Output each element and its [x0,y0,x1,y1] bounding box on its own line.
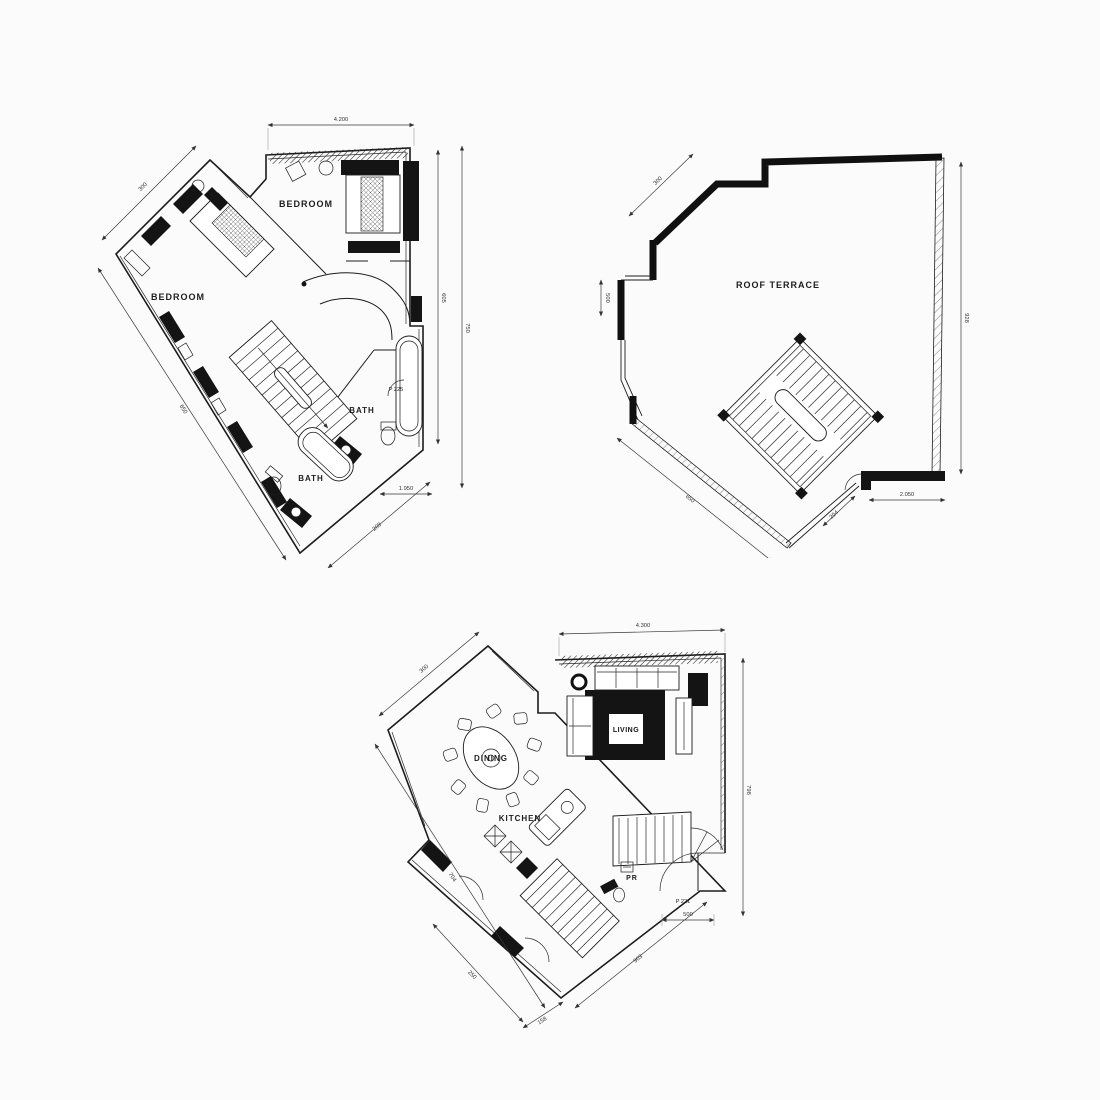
room-label-pr: PR [626,875,638,882]
dim-bottom-right-h: 2.050 [900,492,915,498]
cistern [600,879,618,894]
room-label-bath-lower: BATH [298,474,324,483]
chair [523,769,540,786]
dim-bottom-right: 903 [633,954,644,965]
side-table [319,161,333,175]
door-tag: P 221 [676,899,691,905]
room-label-bath-upper: BATH [349,406,375,415]
dim-left-upper: 300 [653,176,664,187]
wardrobe-block [141,216,171,246]
counter-tile [516,857,538,879]
living-furniture [567,666,708,760]
upper-floor-plan: BEDROOM BEDROOM BATH BATH P 225 4.200 60… [78,98,478,568]
main-floor-plan: LIVING DINING [373,610,773,1030]
wardrobe-block [341,160,399,175]
right-wall [932,158,944,476]
chair [476,798,489,813]
dim-right: 798 [745,785,751,795]
chair [286,161,306,181]
dim-right-outer: 750 [464,323,470,333]
room-label-roof-terrace: ROOF TERRACE [736,280,820,290]
room-label-dining: DINING [474,754,508,763]
door-tag: P 225 [389,387,404,393]
toilet [614,888,625,902]
dim-bottom-inner: 250 [466,970,477,981]
dim-left-upper: 300 [419,664,430,675]
staircase [229,321,357,456]
side-table [572,675,586,689]
dim-left-lower: 704 [447,872,458,884]
room-label-bedroom-right: BEDROOM [279,199,333,209]
chair [442,747,458,762]
top-wall-hatch [561,651,718,668]
room-label-bedroom-left: BEDROOM [151,292,205,302]
door-hinge-dot [302,282,307,287]
room-label-living: LIVING [613,727,639,734]
dim-top: 4.200 [334,117,349,123]
chair [514,712,528,724]
wardrobe-block [491,926,524,957]
chair [457,718,472,731]
dim-bottom-left: 650 [684,494,695,505]
wardrobe-block [173,184,203,214]
dim-right-inner: 605 [440,293,446,303]
bottom-wall-bar [861,471,945,481]
roof-terrace-plan: ROOF TERRACE 928 300 500 650 2.050 204 [593,128,983,558]
chair [526,737,542,752]
powder-room [600,862,633,902]
dim-bath-width: 1.950 [399,486,414,492]
parapet-top [655,157,942,243]
dim-top: 4.300 [636,623,651,629]
bedroom-right-furniture [286,160,422,322]
right-wall-hatch [721,658,725,850]
room-label-kitchen: KITCHEN [499,814,542,823]
dim-left-upper: 300 [138,182,149,193]
dim-left-mid: 500 [604,293,610,303]
dim-right: 928 [963,313,969,323]
chair [485,703,502,719]
floor-plan-sheet: BEDROOM BEDROOM BATH BATH P 225 4.200 60… [0,0,1100,1100]
chair [450,779,467,796]
chair [505,792,520,808]
